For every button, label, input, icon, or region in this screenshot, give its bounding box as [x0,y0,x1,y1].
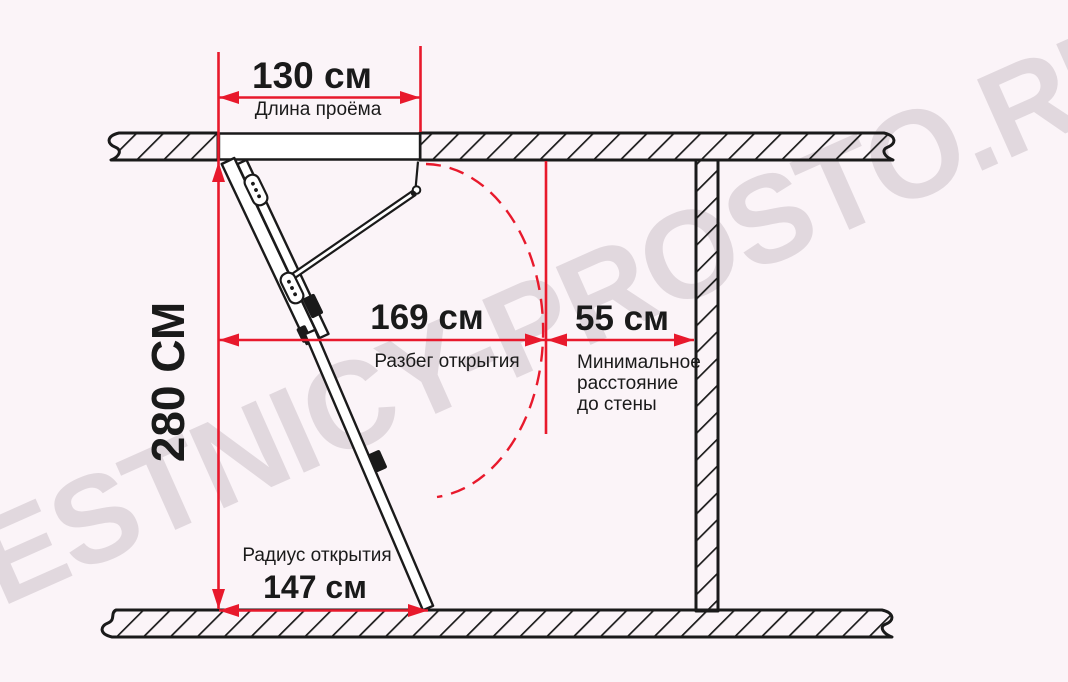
dim-run-value: 169 см [327,299,527,337]
dim-radius-label: Радиус открытия [217,546,417,567]
dim-opening-length-value: 130 см [212,56,412,96]
dim-run-label: Разбег открытия [337,352,557,373]
ceiling-opening-frame [219,134,420,160]
spring-strut [288,191,416,281]
dim-wall-distance-label: Минимальное расстояние до стены [577,352,757,415]
ceiling-left-segment [109,133,218,160]
dim-wall-distance-value: 55 см [542,300,702,338]
hatch-door [222,158,320,344]
strut-rod [416,162,419,190]
dim-radius-value: 147 см [215,570,415,605]
attic-ladder [222,158,433,610]
dim-opening-length-label: Длина проёма [218,100,418,121]
ceiling-right-segment [420,133,894,160]
dim-height-value: 280 СМ [144,267,196,497]
strut-end-fitting [411,191,416,196]
diagram-canvas: LESTNICY-PROSTO.RU [0,0,1068,682]
floor [102,610,892,637]
